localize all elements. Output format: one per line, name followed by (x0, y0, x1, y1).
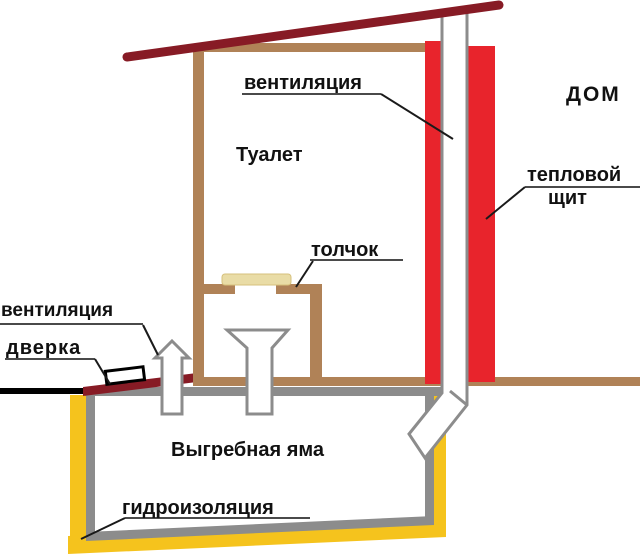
ground-line (0, 388, 87, 394)
waterproofing-left (70, 395, 86, 545)
cabin-left-wall (193, 47, 204, 386)
pit-wall-left (86, 393, 95, 539)
label-toilet-room: Туалет (236, 145, 303, 165)
label-heat-shield-line2: щит (548, 188, 587, 208)
label-heat-shield-line1: тепловой (527, 165, 621, 185)
label-house: ДОМ (566, 84, 621, 105)
label-waterproofing: гидроизоляция (122, 498, 274, 518)
red-panel-narrow (425, 41, 441, 384)
outhouse-construction-diagram: вентиляция ДОМ Туалет тепловой щит толчо… (0, 0, 640, 555)
label-toilet-seat: толчок (311, 240, 378, 260)
seat-lid (222, 274, 291, 285)
pedestal-right-side (310, 284, 322, 380)
label-cesspool: Выгребная яма (171, 440, 324, 460)
seat-funnel (227, 330, 288, 414)
label-door: дверка (6, 338, 81, 358)
label-ventilation-top: вентиляция (244, 73, 362, 93)
pointer-ventilation-left (143, 325, 158, 355)
label-ventilation-left: вентиляция (1, 301, 113, 320)
pointer-toilet-seat (296, 261, 313, 287)
pit-door (105, 367, 144, 385)
